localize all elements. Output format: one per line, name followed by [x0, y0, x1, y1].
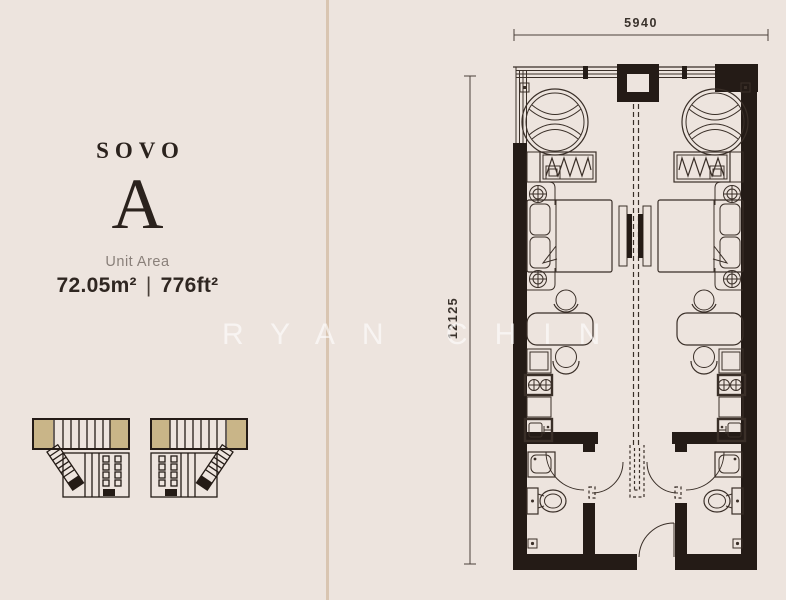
wall-foyer-right: [675, 503, 687, 554]
dimension-left: 12125: [446, 76, 476, 564]
floor-plan-drawing: 5940 12125: [0, 0, 786, 600]
dimension-top-label: 5940: [624, 16, 658, 30]
door-arc-unit-right: [647, 462, 678, 493]
bathroom: [527, 452, 566, 548]
door-arc-main-entrance: [639, 523, 674, 557]
wardrobe: [527, 152, 596, 182]
doors: [546, 452, 724, 557]
door-arc-unit-left: [592, 462, 623, 493]
bedside-lamp-top: [527, 182, 555, 205]
unit-left-furniture: [520, 66, 632, 548]
tv-console: [619, 206, 632, 266]
door-arc-bathroom-left: [546, 452, 584, 490]
wall-bottom-right: [675, 554, 757, 570]
bed: [527, 200, 612, 272]
wall-left: [513, 143, 527, 570]
partition-dashed: [589, 104, 681, 498]
wall-foyer-left: [583, 503, 595, 554]
toilet: [527, 488, 566, 514]
door-arc-bathroom-right: [686, 452, 724, 490]
unit-right-furniture: [638, 66, 750, 548]
floor-plan-page: SOVO A Unit Area 72.05m²|776ft² RYAN CHI…: [0, 0, 786, 600]
dimension-left-label: 12125: [446, 297, 460, 339]
desk: [527, 290, 593, 374]
bedside-lamp-bottom: [527, 268, 555, 290]
wall-bottom-left: [513, 554, 637, 570]
dimension-top: 5940: [514, 16, 768, 41]
kitchenette: [525, 349, 552, 441]
